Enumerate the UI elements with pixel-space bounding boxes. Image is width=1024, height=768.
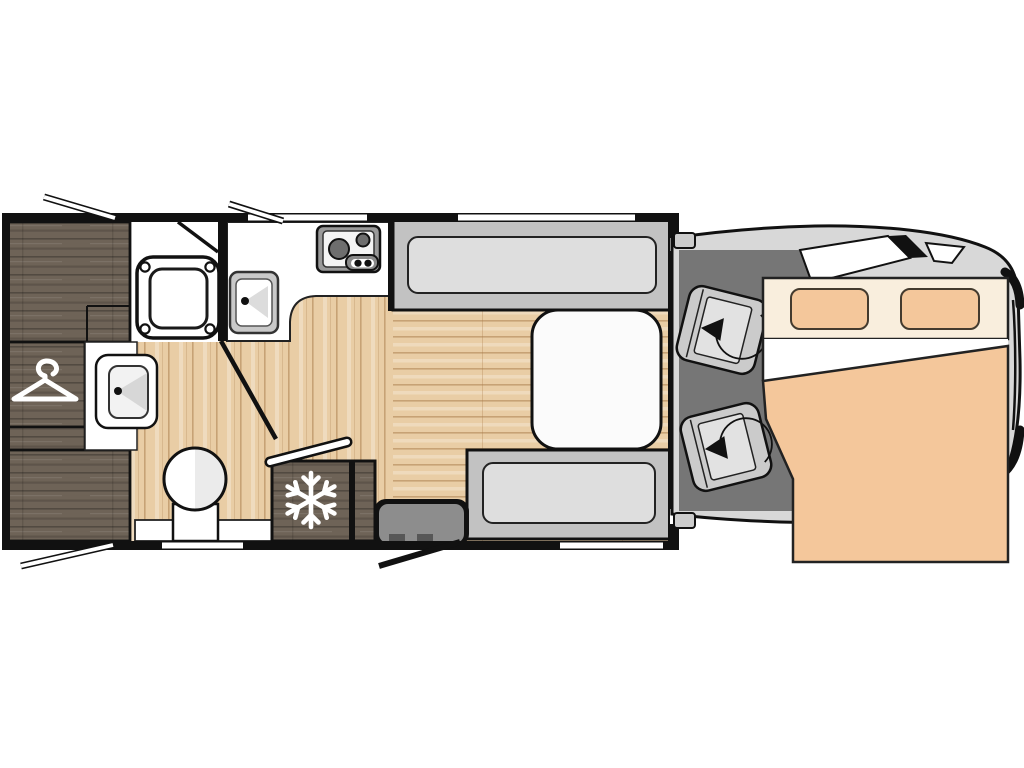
- mirror-bottom: [674, 513, 695, 528]
- dinette-window: [458, 215, 635, 221]
- pillow-right: [901, 289, 979, 329]
- floorplan-canvas: [0, 0, 1024, 768]
- washbasin: [96, 355, 157, 428]
- shower-room: [130, 222, 219, 342]
- toilet: [164, 448, 226, 541]
- overcab-bed: [763, 278, 1008, 562]
- dinette-table: [532, 310, 661, 449]
- wall-left: [2, 213, 10, 550]
- floorplan-svg: [0, 0, 1024, 768]
- bathroom-window: [162, 543, 243, 549]
- wardrobe: [8, 342, 85, 427]
- faucet: [114, 387, 122, 395]
- two-burner-hob: [317, 226, 380, 272]
- kitchen-sink: [230, 272, 278, 333]
- drawer-cabinet: [8, 427, 85, 450]
- duvet: [763, 346, 1008, 562]
- lounge-window: [560, 543, 663, 549]
- overhead-cabinet: [8, 222, 130, 342]
- burner-large: [329, 239, 349, 259]
- lower-cabinet: [8, 450, 130, 541]
- rear-bench-seat: [393, 220, 672, 310]
- faucet: [241, 297, 249, 305]
- bathroom-wall: [218, 222, 227, 341]
- refrigerator: [272, 461, 375, 541]
- shower-tray: [137, 257, 219, 338]
- mirror-top: [674, 233, 695, 248]
- burner-small: [357, 234, 370, 247]
- front-bench-seat: [467, 450, 672, 539]
- pillow-left: [791, 289, 868, 329]
- entry-step: [374, 499, 469, 546]
